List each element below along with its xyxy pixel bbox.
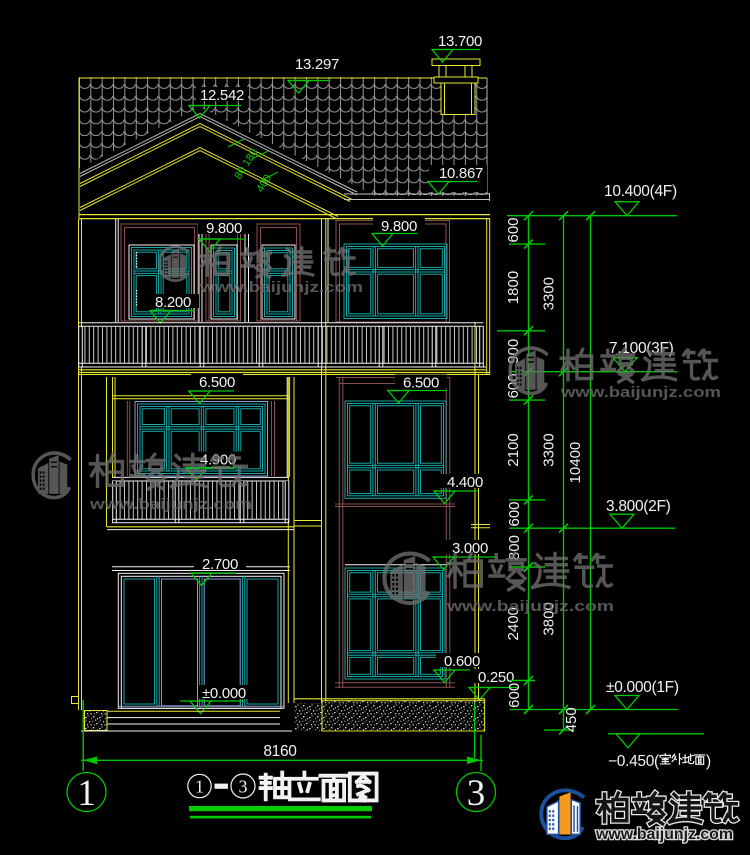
svg-text:8.200: 8.200	[155, 294, 191, 311]
svg-text:1: 1	[195, 777, 204, 797]
svg-text:3.800(2F): 3.800(2F)	[606, 498, 671, 515]
svg-text:600: 600	[506, 683, 523, 708]
svg-text:9.800: 9.800	[206, 220, 242, 237]
svg-text:www.baijunjz.com: www.baijunjz.com	[595, 826, 733, 843]
svg-text:600: 600	[505, 217, 522, 242]
svg-text:600: 600	[506, 501, 523, 526]
svg-text:1800: 1800	[505, 271, 522, 304]
svg-text:www.baijunjz.com: www.baijunjz.com	[89, 497, 252, 513]
svg-text:9.800: 9.800	[381, 218, 417, 235]
svg-text:8160: 8160	[263, 743, 297, 760]
svg-text:10400: 10400	[567, 442, 584, 484]
svg-text:4.400: 4.400	[447, 474, 483, 491]
svg-text:2100: 2100	[505, 433, 522, 466]
svg-text:3: 3	[239, 777, 248, 797]
svg-text:10.400(4F): 10.400(4F)	[604, 183, 677, 200]
svg-text:www.baijunjz.com: www.baijunjz.com	[446, 598, 614, 615]
svg-text:): )	[706, 753, 711, 770]
svg-text:10.867: 10.867	[439, 165, 483, 182]
svg-text:6.500: 6.500	[199, 374, 235, 391]
svg-text:www.baijunjz.com: www.baijunjz.com	[199, 280, 363, 296]
svg-text:13.700: 13.700	[438, 33, 482, 50]
svg-text:1: 1	[77, 773, 96, 814]
svg-text:±0.000(1F): ±0.000(1F)	[606, 679, 679, 696]
svg-text:6.500: 6.500	[403, 375, 439, 392]
svg-text:2.700: 2.700	[202, 556, 238, 573]
svg-text:12.542: 12.542	[200, 87, 244, 104]
svg-text:3300: 3300	[541, 433, 558, 466]
svg-text:13.297: 13.297	[295, 56, 339, 73]
svg-text:3: 3	[467, 773, 486, 814]
svg-text:−0.450(: −0.450(	[608, 753, 660, 770]
svg-text:0.600: 0.600	[444, 653, 480, 670]
svg-text:www.baijunjz.com: www.baijunjz.com	[560, 385, 721, 401]
svg-text:450: 450	[563, 707, 580, 732]
svg-text:3300: 3300	[541, 277, 558, 310]
svg-text:±0.000: ±0.000	[202, 685, 246, 702]
